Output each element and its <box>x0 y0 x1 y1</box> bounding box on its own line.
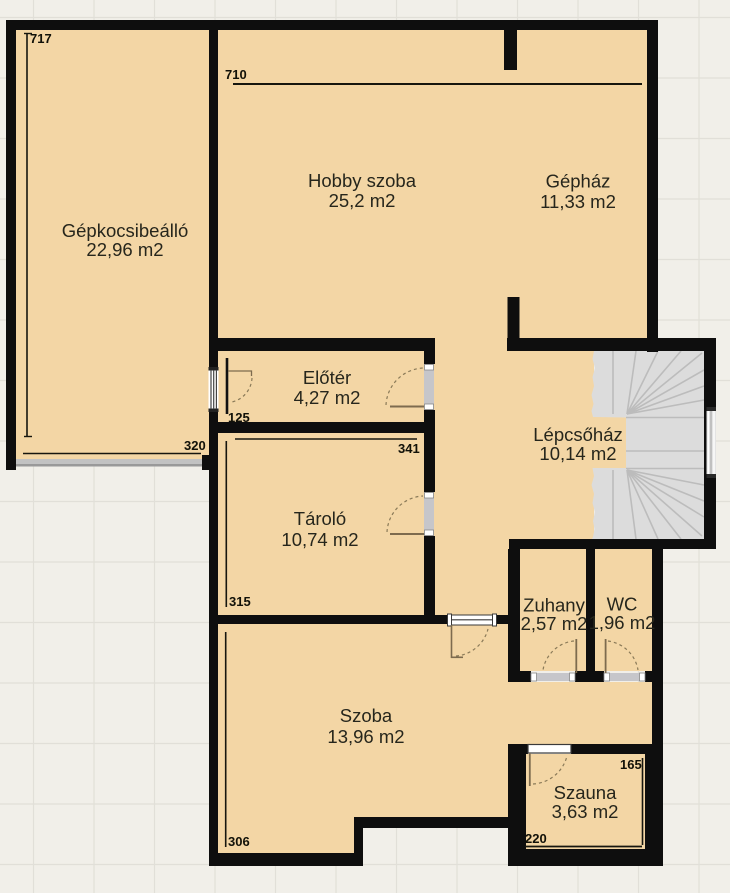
svg-text:2,57 m2: 2,57 m2 <box>521 613 588 634</box>
svg-text:315: 315 <box>229 594 251 609</box>
svg-text:Szauna: Szauna <box>554 782 617 803</box>
svg-text:13,96 m2: 13,96 m2 <box>327 726 404 747</box>
svg-text:3,63 m2: 3,63 m2 <box>552 801 619 822</box>
svg-text:11,33 m2: 11,33 m2 <box>540 191 616 212</box>
svg-text:Gépkocsibeálló: Gépkocsibeálló <box>62 220 189 241</box>
svg-text:717: 717 <box>30 31 52 46</box>
svg-text:Gépház: Gépház <box>546 171 611 192</box>
svg-text:320: 320 <box>184 438 206 453</box>
svg-text:25,2 m2: 25,2 m2 <box>329 190 396 211</box>
svg-text:165: 165 <box>620 757 642 772</box>
svg-text:4,27 m2: 4,27 m2 <box>294 387 361 408</box>
svg-text:341: 341 <box>398 441 420 456</box>
svg-text:Tároló: Tároló <box>294 508 346 529</box>
svg-text:1,96 m2: 1,96 m2 <box>589 612 656 633</box>
svg-text:Hobby szoba: Hobby szoba <box>308 170 417 191</box>
svg-text:306: 306 <box>228 834 250 849</box>
svg-text:Lépcsőház: Lépcsőház <box>533 424 622 445</box>
svg-text:125: 125 <box>228 410 250 425</box>
svg-text:Előtér: Előtér <box>303 367 351 388</box>
svg-text:10,14 m2: 10,14 m2 <box>539 443 616 464</box>
svg-text:220: 220 <box>525 831 547 846</box>
svg-text:22,96 m2: 22,96 m2 <box>86 239 163 260</box>
svg-text:Szoba: Szoba <box>340 705 393 726</box>
svg-text:10,74 m2: 10,74 m2 <box>281 529 358 550</box>
svg-text:710: 710 <box>225 67 247 82</box>
